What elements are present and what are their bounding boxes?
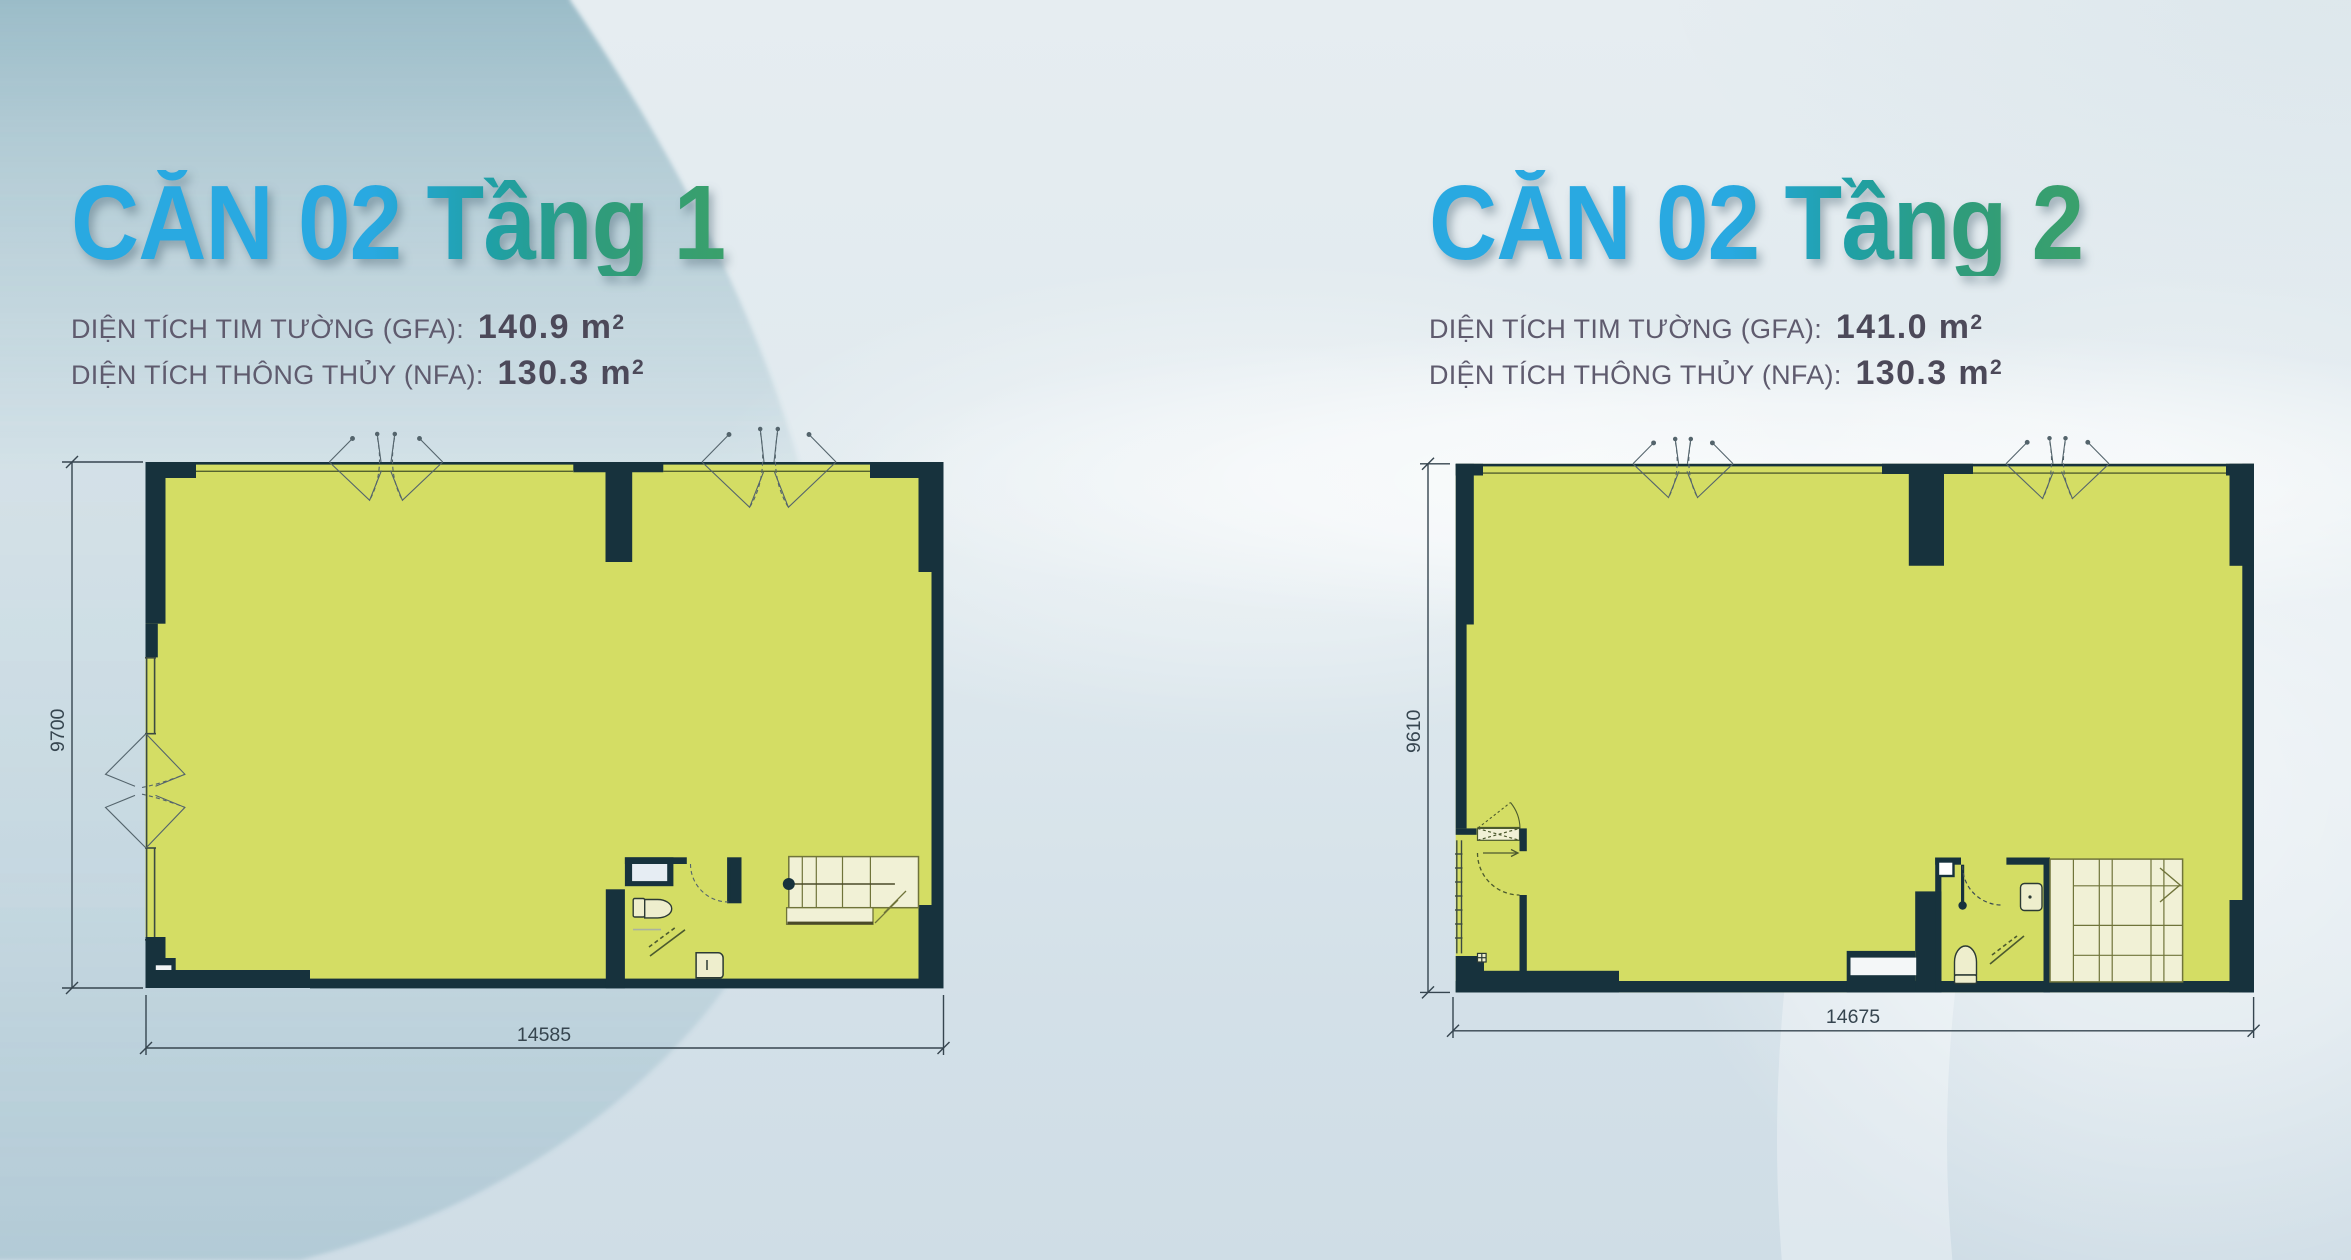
svg-text:14585: 14585	[517, 1024, 571, 1046]
svg-text:14675: 14675	[1826, 1006, 1880, 1028]
svg-text:9610: 9610	[1403, 709, 1425, 753]
svg-text:9700: 9700	[47, 708, 69, 752]
